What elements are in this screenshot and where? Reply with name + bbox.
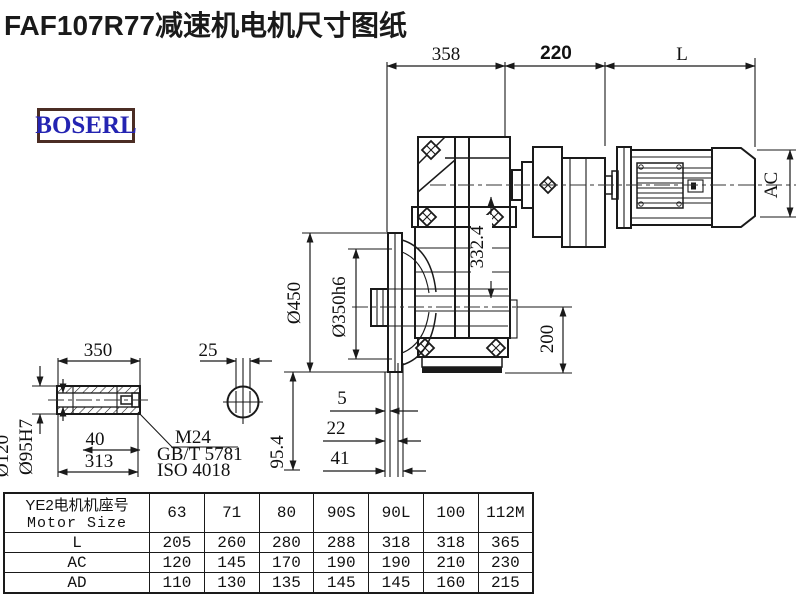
table-cell: 190 <box>369 553 424 573</box>
table-cell: 170 <box>259 553 314 573</box>
table-cell: 130 <box>204 573 259 594</box>
page-title: FAF107R77减速机电机尺寸图纸 <box>4 4 407 44</box>
dim-25-label: 25 <box>199 340 218 361</box>
dim-332-4-label: 332.4 <box>467 225 488 268</box>
gearbox-housing <box>412 137 517 373</box>
table-col-80: 80 <box>259 493 314 533</box>
dimension-drawing-page: 358 220 L AC Ø450 Ø350h6 332.4 200 95.4 … <box>0 0 800 596</box>
table-col-90S: 90S <box>314 493 369 533</box>
table-cell: 288 <box>314 533 369 553</box>
dim-313-label: 313 <box>85 451 114 472</box>
dim-dia95h7-label: Ø95H7 <box>16 419 37 475</box>
table-cell: 120 <box>150 553 205 573</box>
table-row-AD: AD 110 130 135 145 145 160 215 <box>4 573 533 594</box>
table-col-112M: 112M <box>478 493 533 533</box>
dim-AC-label: AC <box>761 172 782 198</box>
table-row-AC: AC 120 145 170 190 190 210 230 <box>4 553 533 573</box>
table-cell: 110 <box>150 573 205 594</box>
table-cell: 318 <box>369 533 424 553</box>
table-cell: 145 <box>369 573 424 594</box>
thread-standard-iso-label: ISO 4018 <box>157 460 230 481</box>
table-header-motor-size: YE2电机机座号 Motor Size <box>4 493 150 533</box>
technical-drawing: 358 220 L AC Ø450 Ø350h6 332.4 200 95.4 … <box>0 0 800 492</box>
dim-200-label: 200 <box>537 325 558 354</box>
brand-logo-text: BOSERL <box>35 113 136 138</box>
shaft-end-view <box>223 358 263 424</box>
dim-L-label: L <box>676 44 688 65</box>
dim-220-label: 220 <box>540 43 572 64</box>
table-cell: 230 <box>478 553 533 573</box>
table-col-71: 71 <box>204 493 259 533</box>
table-header-cn: YE2电机机座号 <box>5 494 149 515</box>
table-cell: 205 <box>150 533 205 553</box>
dim-dia450-label: Ø450 <box>284 282 305 324</box>
dim-95-4-label: 95.4 <box>267 435 288 469</box>
table-cell: 190 <box>314 553 369 573</box>
dim-dia120-label: Ø120 <box>0 435 13 477</box>
table-cell: 260 <box>204 533 259 553</box>
table-col-100: 100 <box>423 493 478 533</box>
table-cell: 365 <box>478 533 533 553</box>
motor-adapter <box>512 147 618 247</box>
dim-5-label: 5 <box>337 388 347 409</box>
table-col-90L: 90L <box>369 493 424 533</box>
table-cell: 145 <box>314 573 369 594</box>
dim-dia350h6-label: Ø350h6 <box>329 276 350 337</box>
table-cell: 280 <box>259 533 314 553</box>
table-row-label: AD <box>4 573 150 594</box>
table-cell: 135 <box>259 573 314 594</box>
table-cell: 215 <box>478 573 533 594</box>
table-col-63: 63 <box>150 493 205 533</box>
dim-350-label: 350 <box>84 340 113 361</box>
table-row-L: L 205 260 280 288 318 318 365 <box>4 533 533 553</box>
brand-logo: BOSERL <box>37 108 135 143</box>
dim-22-label: 22 <box>327 418 346 439</box>
motor-size-table: YE2电机机座号 Motor Size 63 71 80 90S 90L 100… <box>3 492 534 594</box>
table-header-en: Motor Size <box>5 515 149 532</box>
dim-41-label: 41 <box>331 448 350 469</box>
table-row-label: AC <box>4 553 150 573</box>
table-cell: 318 <box>423 533 478 553</box>
table-cell: 210 <box>423 553 478 573</box>
dim-40-label: 40 <box>86 429 105 450</box>
table-cell: 160 <box>423 573 478 594</box>
dim-358-label: 358 <box>432 44 461 65</box>
table-row-label: L <box>4 533 150 553</box>
table-cell: 145 <box>204 553 259 573</box>
